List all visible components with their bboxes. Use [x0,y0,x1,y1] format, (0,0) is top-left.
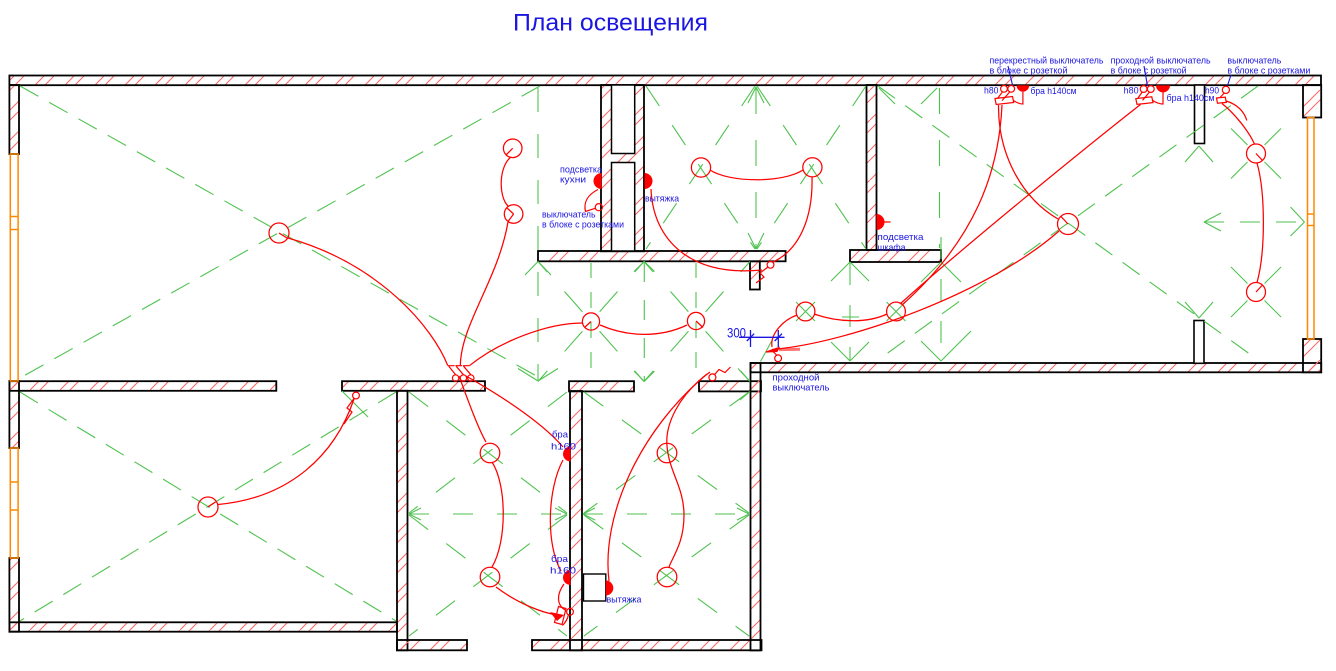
svg-text:h80: h80 [984,86,999,97]
svg-text:План освещения: План освещения [513,10,708,37]
svg-text:вытяжка: вытяжка [607,595,643,606]
svg-text:бра: бра [551,554,569,565]
svg-text:h90: h90 [1205,86,1219,97]
svg-text:выключатель: выключатель [773,383,830,394]
svg-text:h160: h160 [551,442,576,453]
svg-text:подсветка: подсветка [878,232,925,243]
svg-text:кухни: кухни [560,175,586,186]
svg-text:h80: h80 [1124,86,1139,97]
svg-text:вытяжка: вытяжка [645,194,680,205]
svg-text:в блоке с розетками: в блоке с розетками [1227,65,1310,76]
svg-text:в блоке с розеткой: в блоке с розеткой [990,65,1068,76]
svg-text:шкафа: шкафа [878,242,907,253]
svg-text:300: 300 [727,326,746,341]
svg-text:бра: бра [552,430,569,441]
svg-text:в блоке с розетками: в блоке с розетками [542,220,624,231]
svg-text:в блоке с розеткой: в блоке с розеткой [1111,65,1187,76]
svg-text:бра h140см: бра h140см [1031,86,1077,97]
svg-text:h160: h160 [550,566,576,577]
